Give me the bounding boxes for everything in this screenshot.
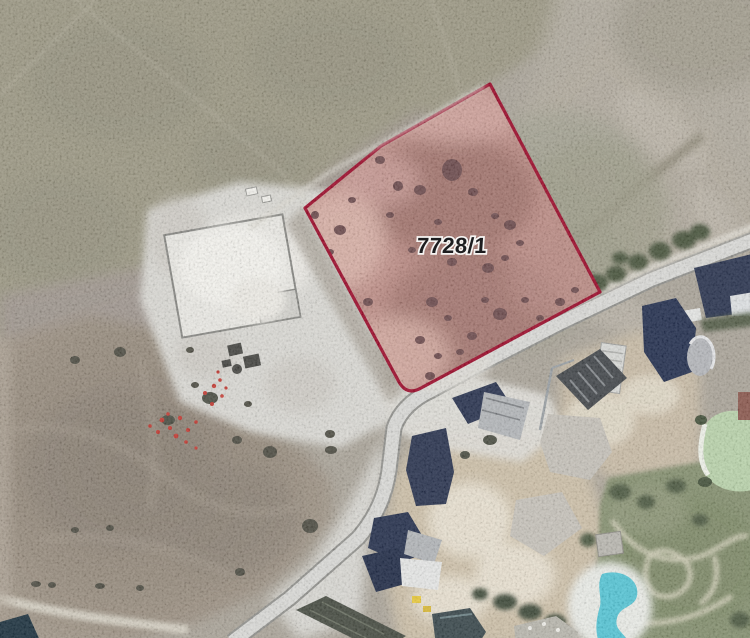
svg-text:7728/1: 7728/1 bbox=[416, 233, 488, 258]
